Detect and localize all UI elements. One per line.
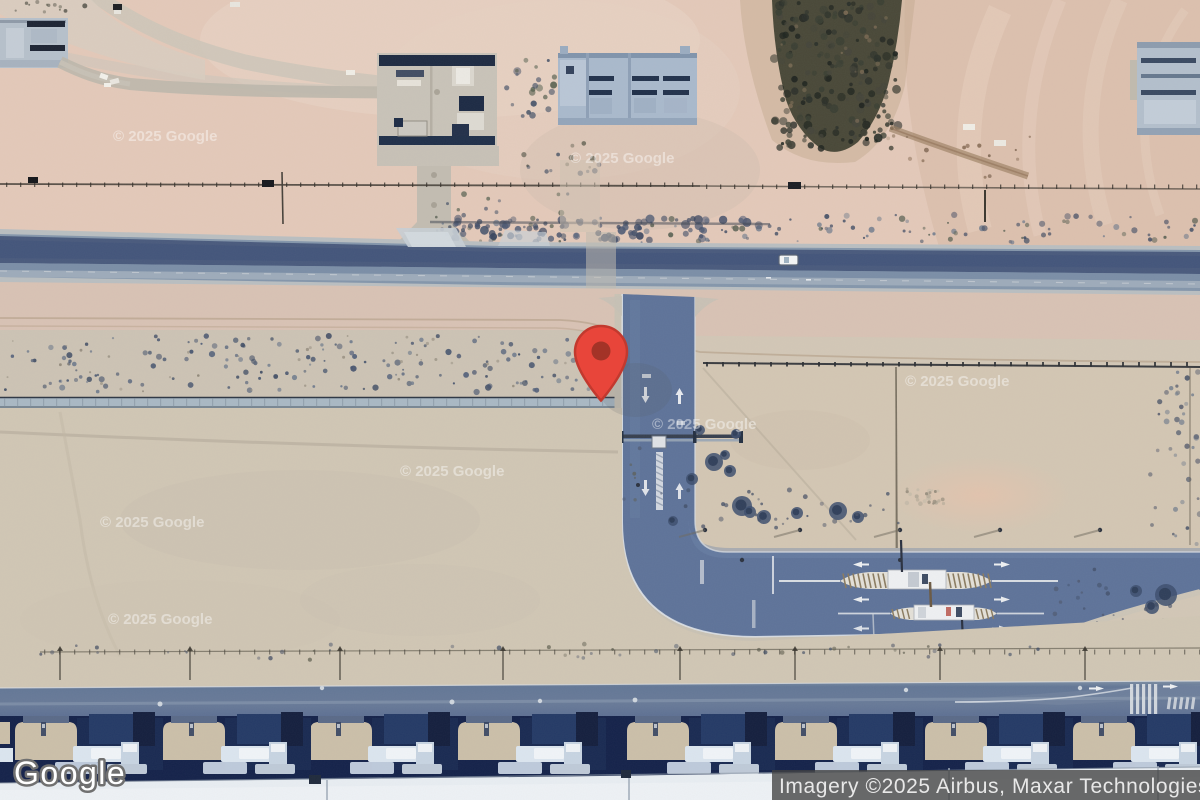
svg-text:Imagery ©2025 Airbus, Maxar Te: Imagery ©2025 Airbus, Maxar Technologies	[779, 775, 1200, 798]
svg-text:© 2025 Google: © 2025 Google	[570, 150, 674, 167]
svg-text:Google: Google	[14, 755, 126, 791]
svg-text:© 2025 Google: © 2025 Google	[113, 128, 217, 145]
svg-text:© 2025 Google: © 2025 Google	[100, 514, 204, 531]
svg-text:© 2025 Google: © 2025 Google	[905, 373, 1009, 390]
svg-text:© 2025 Google: © 2025 Google	[400, 463, 504, 480]
svg-text:© 2025 Google: © 2025 Google	[108, 611, 212, 628]
svg-text:© 2025 Google: © 2025 Google	[652, 416, 756, 433]
